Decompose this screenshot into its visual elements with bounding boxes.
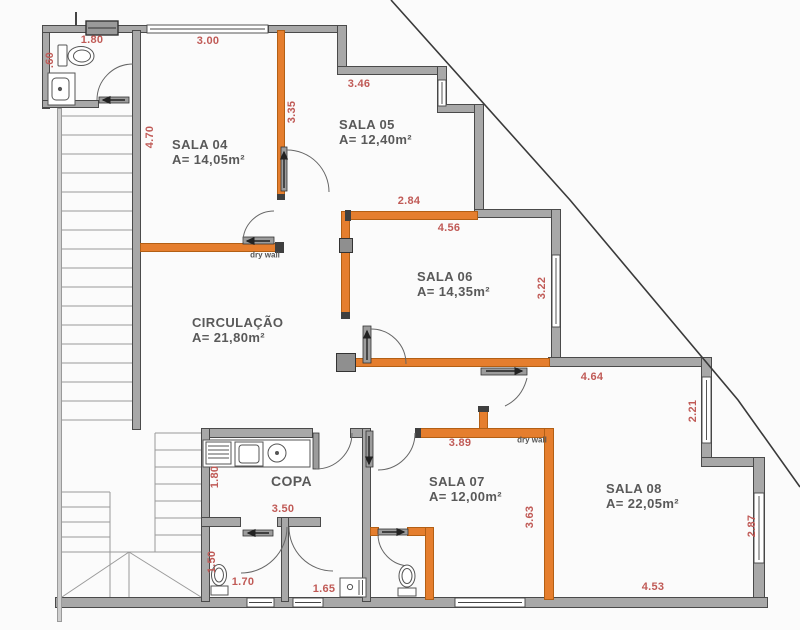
door-leaves [99, 97, 527, 536]
window [293, 598, 323, 607]
window [247, 598, 274, 607]
window [552, 255, 560, 327]
room-name: SALA 06 [417, 269, 490, 284]
room-name: SALA 07 [429, 474, 502, 489]
dimension-label: 3.22 [536, 277, 548, 300]
dimension-label: 1.50 [206, 551, 218, 574]
dimension-label: 1.65 [313, 583, 336, 595]
dimension-label: 4.53 [642, 581, 665, 593]
room-label-sala07: SALA 07 A= 12,00m² [429, 474, 502, 504]
dimension-label: 1.80 [209, 466, 221, 489]
toilet [58, 45, 94, 66]
plan-drawing [0, 0, 800, 630]
dimension-label: 2.87 [746, 515, 758, 538]
window [438, 80, 446, 106]
dimension-label: 3.00 [197, 35, 220, 47]
room-label-sala06: SALA 06 A= 14,35m² [417, 269, 490, 299]
room-area: A= 12,00m² [429, 489, 502, 504]
door-leaf [313, 433, 319, 469]
dimension-label: 2.84 [398, 195, 421, 207]
dimension-label: 4.56 [438, 222, 461, 234]
property-line [391, 0, 800, 487]
dimension-label: 3.46 [348, 78, 371, 90]
dimension-label: 3.89 [449, 437, 472, 449]
room-label-sala08: SALA 08 A= 22,05m² [606, 481, 679, 511]
kitchen-counter [203, 440, 310, 467]
dimension-label: 1.80 [81, 34, 104, 46]
room-area: A= 14,05m² [172, 152, 245, 167]
room-area: A= 14,35m² [417, 284, 490, 299]
toilet [398, 565, 416, 596]
stairs [62, 116, 201, 597]
drywall-annotation: dry wall [517, 436, 547, 445]
bath-top-window [86, 21, 118, 35]
room-name: CIRCULAÇÃO [192, 315, 283, 330]
dimension-label: 3.50 [272, 503, 295, 515]
dimension-label: 3.63 [524, 506, 536, 529]
floor-plan: SALA 04 A= 14,05m² SALA 05 A= 12,40m² SA… [0, 0, 800, 630]
dimension-label: 1.70 [232, 576, 255, 588]
door-arrows [103, 100, 522, 533]
room-label-sala04: SALA 04 A= 14,05m² [172, 137, 245, 167]
room-area: A= 22,05m² [606, 496, 679, 511]
window [147, 25, 268, 33]
room-label-circulacao: CIRCULAÇÃO A= 21,80m² [192, 315, 283, 345]
dimension-label: 2.21 [687, 400, 699, 423]
room-name: SALA 08 [606, 481, 679, 496]
room-name: SALA 04 [172, 137, 245, 152]
room-name: SALA 05 [339, 117, 412, 132]
room-area: A= 12,40m² [339, 132, 412, 147]
room-label-copa: COPA [271, 474, 312, 489]
dimension-label: .60 [44, 52, 56, 68]
room-name: COPA [271, 474, 312, 489]
water-heater [340, 578, 366, 597]
dimension-label: 4.70 [144, 126, 156, 149]
dimension-label: 4.64 [581, 371, 604, 383]
dimension-label: 3.35 [286, 101, 298, 124]
sink [48, 73, 75, 105]
room-label-sala05: SALA 05 A= 12,40m² [339, 117, 412, 147]
drywall-annotation: dry wall [250, 251, 280, 260]
window [455, 598, 525, 607]
window [702, 377, 711, 443]
room-area: A= 21,80m² [192, 330, 283, 345]
